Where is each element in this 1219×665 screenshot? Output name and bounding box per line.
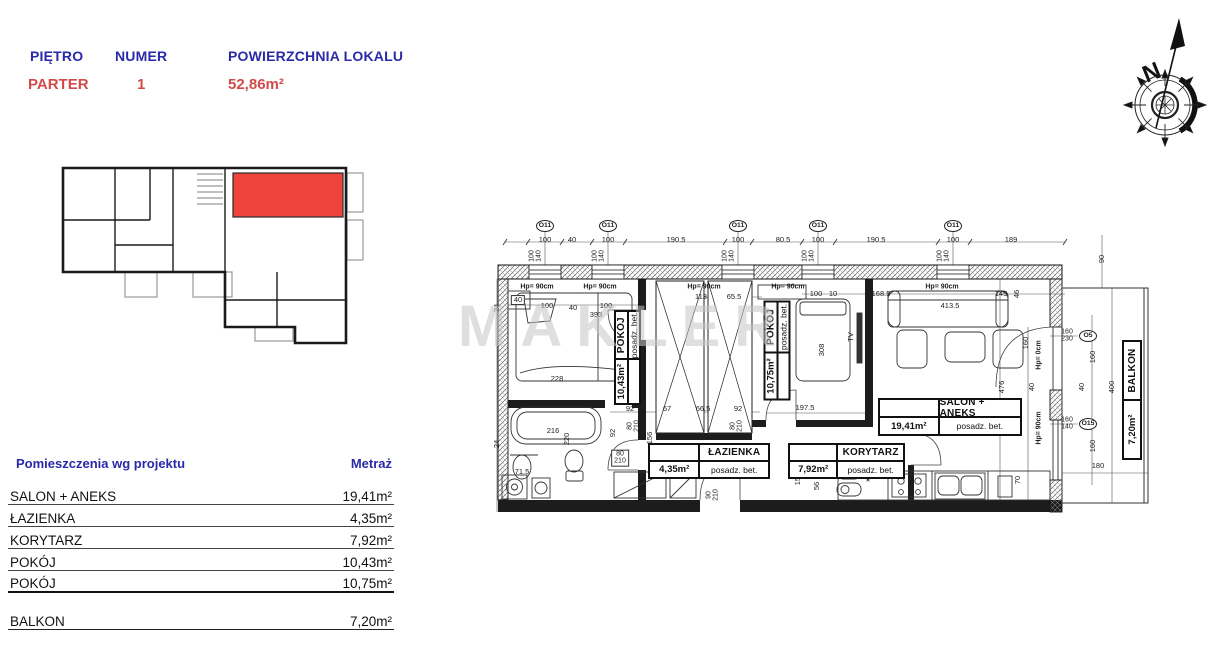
rooms-col-header: Pomieszczenia wg projektu	[16, 456, 185, 471]
dimension-label: 92	[626, 405, 634, 413]
dimension-label: Hp= 90cm	[520, 283, 553, 290]
dimension-label: Hp= 90cm	[1035, 411, 1042, 444]
dimension-label: 228	[551, 375, 564, 383]
row-name: BALKON	[10, 614, 65, 629]
dimension-label: 90 210	[706, 489, 721, 501]
dimension-label: 100	[812, 236, 825, 244]
dimension-label: 80.5	[776, 236, 791, 244]
dimension-label: 100 140	[592, 250, 607, 262]
bed2-icon	[796, 299, 850, 381]
floor-plan-drawing	[480, 215, 1190, 545]
dimension-label: 100 140	[529, 250, 544, 262]
dimension-label: 40	[1078, 383, 1086, 391]
dimension-label: 10	[829, 290, 837, 298]
dimension-label: 40	[568, 236, 576, 244]
dimension-label: 71.5	[515, 468, 530, 476]
table-row: KORYTARZ 7,92m²	[8, 527, 394, 549]
dimension-label: Hp= 90cm	[583, 283, 616, 290]
dimension-label: 100	[810, 290, 823, 298]
dimension-label: 197.5	[796, 404, 815, 412]
dimension-label: 160	[1022, 337, 1030, 350]
row-name: POKÓJ	[10, 555, 56, 570]
dimension-label: 190.5	[667, 236, 686, 244]
dimension-label: 476	[998, 381, 1006, 394]
dimension-label: 216	[547, 427, 560, 435]
dimension-label: Hp= 90cm	[687, 283, 720, 290]
dimension-label: 100 140	[802, 250, 817, 262]
floorplan-sheet: { "header": { "floor_label": "PIĘTRO", "…	[0, 0, 1219, 665]
dimension-label: 80 210	[627, 420, 642, 432]
area-value: 52,86m²	[228, 76, 284, 93]
floor-value: PARTER	[28, 76, 89, 93]
dimension-label: 90	[1098, 255, 1106, 263]
compass-rose: N	[1118, 8, 1213, 148]
dimension-label: 65.5	[727, 293, 742, 301]
dimension-label: 168.5	[872, 290, 891, 298]
row-area: 10,75m²	[342, 576, 392, 591]
dimension-label: 80 210	[730, 420, 745, 432]
dimension-label: 100 140	[937, 250, 952, 262]
row-name: POKÓJ	[10, 576, 56, 591]
row-area: 19,41m²	[342, 489, 392, 504]
table-row: POKÓJ 10,75m²	[8, 571, 394, 593]
dimension-label: 180	[1092, 462, 1105, 470]
dimension-label: 66.5	[696, 405, 711, 413]
label-cell-empty	[649, 444, 699, 461]
dimension-label: 160	[1089, 351, 1097, 364]
table-row: SALON + ANEKS 19,41m²	[8, 483, 394, 505]
dimension-label: O5	[1079, 330, 1097, 342]
dimension-label: 67	[663, 405, 671, 413]
coffee-table-icon	[945, 332, 985, 362]
number-label: NUMER	[115, 48, 167, 64]
row-name: KORYTARZ	[10, 533, 82, 548]
dimension-label: 220	[563, 433, 571, 446]
dimension-label: 40	[569, 304, 577, 312]
mini-building-plan	[55, 160, 385, 355]
dimension-label: 100	[602, 236, 615, 244]
dimension-label: 189	[1005, 236, 1018, 244]
label-cell-empty	[777, 352, 790, 399]
dimension-label: 100	[600, 302, 613, 310]
dimension-label: 400	[1108, 381, 1116, 394]
dimension-label: O11	[599, 220, 617, 232]
dimension-label: 24	[493, 440, 501, 448]
dimension-label: Hp= 90cm	[771, 283, 804, 290]
floor-plan: ŁAZIENKA 4,35m² posadz. bet. KORYTARZ 7,…	[480, 215, 1190, 545]
armchair-icon	[897, 330, 927, 368]
room-label-pokoj-2: 10,75m² POKÓJ posadz. bet.	[764, 301, 791, 401]
row-area: 7,20m²	[350, 614, 392, 629]
dimension-label: 70	[1014, 476, 1022, 484]
room-label-lazienka: ŁAZIENKA 4,35m² posadz. bet.	[648, 443, 770, 479]
dimension-label: 100	[541, 302, 554, 310]
dimension-label: TV	[847, 332, 855, 342]
dimension-label: 40	[511, 295, 525, 305]
dimension-label: O11	[729, 220, 747, 232]
highlighted-unit	[233, 173, 343, 217]
dimension-label: 160 230	[1061, 329, 1073, 344]
dimension-label: 393	[590, 311, 603, 319]
room-label-korytarz: KORYTARZ 7,92m² posadz. bet.	[788, 443, 905, 479]
dimension-label: 100 140	[722, 250, 737, 262]
north-arrow-icon: N	[1139, 18, 1185, 128]
dimension-label: 46	[1013, 290, 1021, 298]
balcony-label: 7,20m² BALKON	[1122, 340, 1142, 460]
dimension-label: 92	[734, 405, 742, 413]
row-name: SALON + ANEKS	[10, 489, 116, 504]
washing-machine-icon	[502, 475, 550, 499]
dimension-label: 308	[818, 344, 826, 357]
dimension-label: Hp= 90cm	[925, 283, 958, 290]
rooms-summary-table: Pomieszczenia wg projektu Metraż SALON +…	[8, 456, 394, 630]
dimension-label: O11	[809, 220, 827, 232]
row-area: 4,35m²	[350, 511, 392, 526]
dimension-label: 100	[947, 236, 960, 244]
dimension-label: O15	[1079, 418, 1097, 430]
tv-icon	[857, 313, 862, 363]
dimension-label: 24	[493, 304, 501, 312]
label-cell-empty	[628, 359, 641, 404]
dimension-label: 92	[609, 429, 617, 437]
dimension-label: 413.5	[941, 302, 960, 310]
room-label-salon: SALON + ANEKS 19,41m² posadz. bet.	[878, 398, 1022, 436]
row-area: 7,92m²	[350, 533, 392, 548]
table-row-balkon: BALKON 7,20m²	[8, 608, 394, 630]
dimension-label: 190.5	[867, 236, 886, 244]
dimension-label: 56	[813, 482, 821, 490]
dimension-label: 145	[995, 290, 1008, 298]
table-row: POKÓJ 10,43m²	[8, 549, 394, 571]
dimension-label: 160	[1089, 440, 1097, 453]
mini-stairs	[197, 174, 223, 204]
dimension-label: 24	[997, 501, 1005, 509]
dimension-label: 100	[732, 236, 745, 244]
area-col-header: Metraż	[351, 456, 392, 471]
table-row: ŁAZIENKA 4,35m²	[8, 505, 394, 527]
dimension-label: O11	[944, 220, 962, 232]
toilet-icon	[565, 450, 583, 481]
row-name: ŁAZIENKA	[10, 511, 75, 526]
dimension-label: 24	[1019, 503, 1027, 511]
number-value: 1	[137, 76, 145, 93]
label-cell-empty	[789, 444, 837, 461]
dimension-label: 160 140	[1061, 417, 1073, 432]
label-cell-empty	[879, 399, 939, 417]
dimension-label: 80 210	[611, 450, 629, 467]
dimension-label: 113	[695, 293, 707, 301]
dimension-label: O11	[536, 220, 554, 232]
dimension-label: 100	[539, 236, 552, 244]
row-area: 10,43m²	[342, 555, 392, 570]
area-label: POWIERZCHNIA LOKALU	[228, 48, 403, 64]
dimension-label: 40	[1028, 383, 1036, 391]
dimension-label: Hp= 0cm	[1035, 340, 1042, 369]
room-label-pokoj-1: 10,43m² POKÓJ posadz. bet.	[614, 310, 641, 405]
floor-label: PIĘTRO	[30, 48, 83, 64]
